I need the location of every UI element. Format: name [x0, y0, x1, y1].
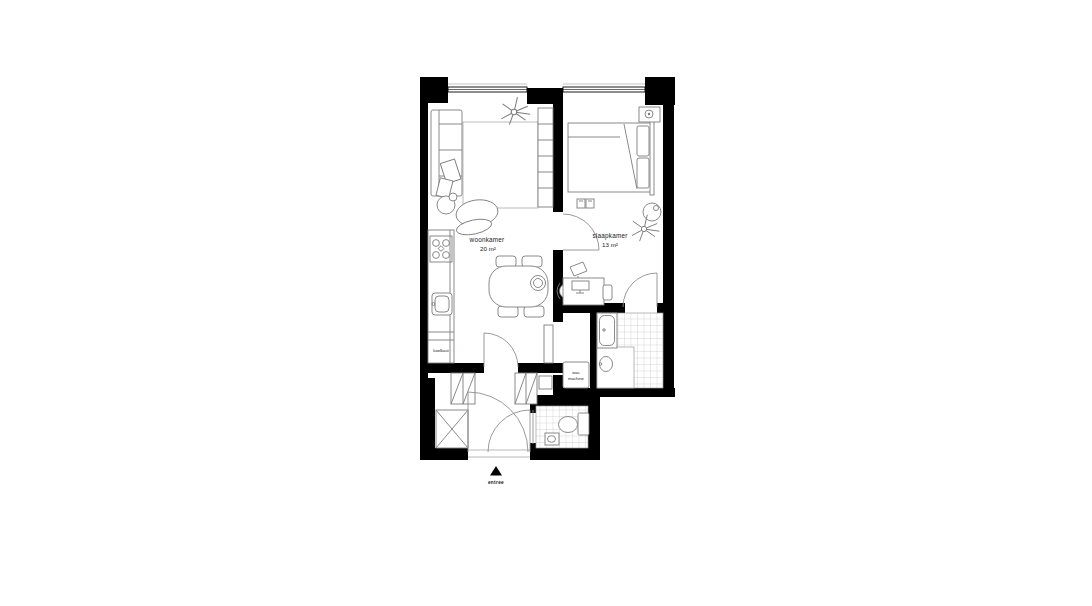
sofa	[431, 110, 462, 198]
books	[577, 199, 594, 208]
entrance-marker: entree	[488, 466, 504, 485]
dining-chair	[498, 306, 518, 317]
entrance-label: entree	[488, 480, 504, 485]
nightstand	[639, 107, 660, 122]
dining-set	[489, 256, 548, 317]
living-room-label: woonkamer	[469, 236, 506, 243]
plant-icon	[501, 97, 530, 125]
svg-text:machine: machine	[568, 376, 584, 381]
living-room-area: 20 m²	[480, 245, 496, 252]
kitchen: koelkast	[428, 230, 454, 363]
pillow	[637, 126, 649, 156]
labels: woonkamer 20 m² slaapkamer 13 m²	[469, 232, 629, 252]
wardrobe	[515, 373, 537, 404]
svg-text:was: was	[572, 370, 579, 375]
storage-closet	[436, 410, 468, 448]
bathroom-sink	[599, 357, 612, 372]
pillow	[637, 158, 649, 188]
dining-chair	[522, 256, 542, 267]
fruit-bowl	[531, 276, 546, 291]
wc-sink	[545, 433, 559, 445]
washing-machine: was machine	[563, 362, 589, 388]
fridge-label: koelkast	[433, 348, 449, 353]
waste-bin	[603, 285, 612, 300]
dining-chair	[496, 256, 516, 267]
wall-cabinet	[544, 325, 553, 363]
bathtub	[597, 313, 617, 348]
rug	[463, 122, 538, 208]
desk-lamp	[570, 262, 587, 278]
bedroom-label: slaapkamer	[592, 232, 628, 240]
bed	[568, 119, 654, 195]
round-table	[643, 203, 661, 221]
dining-chair	[524, 306, 544, 317]
page: koelkast	[0, 0, 1092, 606]
bedroom-area: 13 m²	[602, 241, 618, 248]
service-shaft	[539, 376, 552, 389]
wardrobe	[451, 373, 475, 404]
bathroom-door	[623, 273, 657, 307]
floor-plan-canvas: koelkast	[0, 0, 1092, 606]
up-triangle-icon	[490, 466, 502, 476]
living-room-door	[484, 333, 518, 367]
kitchen-sink	[432, 293, 452, 315]
desk	[557, 262, 612, 305]
bookshelf	[538, 108, 553, 207]
armchair	[454, 197, 499, 237]
